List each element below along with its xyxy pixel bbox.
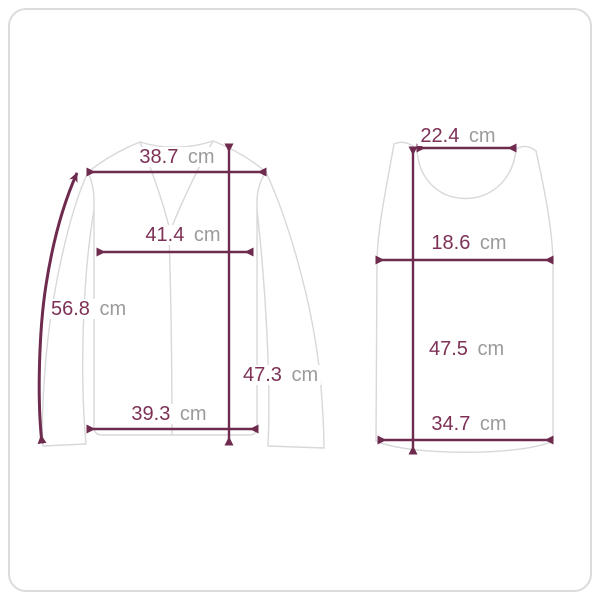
tank-hem-width-label: 34.7 cm <box>428 414 509 434</box>
chest-width-unit: cm <box>194 224 221 246</box>
tank-chest-width-value: 18.6 <box>431 232 470 254</box>
right-shoulder-line <box>213 141 266 172</box>
neck-scoop-line <box>417 149 516 199</box>
long-sleeve-measure-lines <box>39 144 266 445</box>
sleeve-length-unit: cm <box>100 298 127 320</box>
tank-hem-width-value: 34.7 <box>431 413 470 435</box>
tank-hem-width-unit: cm <box>480 413 507 435</box>
tank-total-length-value: 47.5 <box>429 338 468 360</box>
tank-chest-width-unit: cm <box>480 232 507 254</box>
total-length-label: 47.3 cm <box>240 365 321 385</box>
sleeve-length-value: 56.8 <box>51 298 90 320</box>
total-length-value: 47.3 <box>243 364 282 386</box>
hem-width-label: 39.3 cm <box>128 404 209 424</box>
tank-top-garment-outline <box>376 142 553 452</box>
tank-neck-width-value: 22.4 <box>420 125 459 147</box>
total-length-unit: cm <box>292 364 319 386</box>
tank-neck-width-label: 22.4 cm <box>417 126 498 146</box>
hem-width-unit: cm <box>180 403 207 425</box>
left-shoulder-line <box>88 142 140 172</box>
tank-chest-width-label: 18.6 cm <box>428 233 509 253</box>
shoulder-width-value: 38.7 <box>139 146 178 168</box>
tank-top-measure-lines <box>376 147 553 454</box>
tank-total-length-label: 47.5 cm <box>426 339 507 359</box>
shoulder-width-unit: cm <box>188 146 215 168</box>
sleeve-length-label: 56.8 cm <box>48 299 129 319</box>
right-sleeve-outline <box>257 172 324 448</box>
chest-width-label: 41.4 cm <box>142 225 223 245</box>
tank-total-length-unit: cm <box>478 338 505 360</box>
hem-width-value: 39.3 <box>131 403 170 425</box>
tank-neck-width-unit: cm <box>469 125 496 147</box>
right-strap-top-line <box>516 146 536 151</box>
size-guide-diagram: 38.7 cm 41.4 cm 56.8 cm 47.3 cm 39.3 cm … <box>0 0 600 600</box>
left-armhole-line <box>377 144 394 260</box>
shoulder-width-label: 38.7 cm <box>136 147 217 167</box>
right-armhole-line <box>536 151 553 260</box>
chest-width-value: 41.4 <box>145 224 184 246</box>
long-sleeve-garment-outline <box>42 141 324 448</box>
